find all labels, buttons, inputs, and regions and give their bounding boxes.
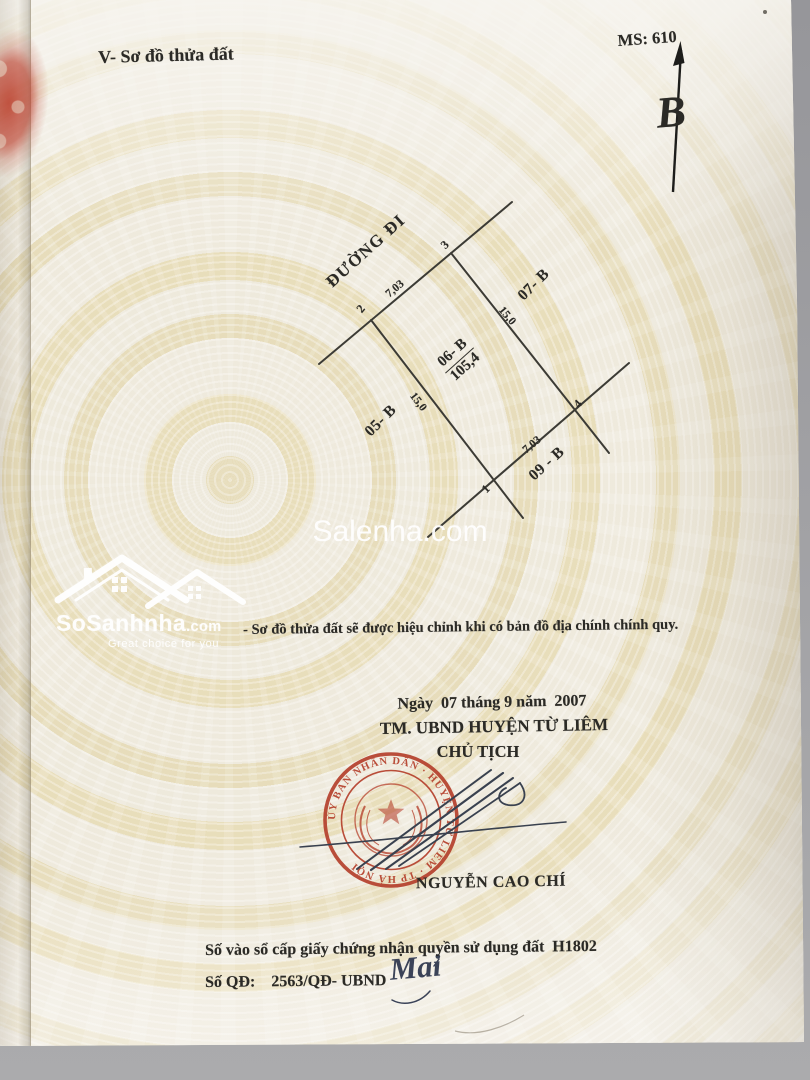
corner-label-3: 3 [438, 238, 453, 253]
authority-line: TM. UBND HUYỆN TỪ LIÊM [380, 715, 608, 739]
logo-tagline: Great choice for you [108, 638, 250, 650]
decision-number-line: Số QĐ: 2563/QĐ- UBND [205, 972, 387, 992]
adjustment-note: - Sơ đồ thửa đất sẽ được hiệu chỉnh khi … [243, 617, 678, 639]
partial-red-stamp [0, 24, 56, 181]
section-title: V- Sơ đồ thửa đất [98, 43, 234, 68]
signature-ink [300, 770, 566, 870]
certificate-page: V- Sơ đồ thửa đất MS: 610 ỦY BAN NHÂN DÂ… [0, 0, 810, 1080]
corner-label-4: 4 [570, 397, 585, 411]
corner-label-1: 1 [479, 482, 494, 497]
logo-suffix: .com [186, 619, 221, 635]
dimension-left: 15,0 [407, 390, 429, 413]
plot-label-06B: 06- B 105,4 [433, 334, 485, 386]
seal-emblem [361, 799, 422, 853]
seal-ring-text: ỦY BAN NHÂN DÂN · HUYỆN TỪ LIÊM · TP HÀ … [326, 756, 456, 885]
dimension-top: 7,03 [383, 278, 406, 300]
dimension-right: 15,0 [496, 304, 518, 327]
houses-icon [50, 550, 246, 608]
map-sheet-code: MS: 610 [617, 27, 677, 51]
north-letter: B [654, 85, 688, 138]
sosanhnha-logo: SoSanhnha.com Great choice for you [50, 550, 250, 652]
official-seal: ỦY BAN NHÂN DÂN · HUYỆN TỪ LIÊM · TP HÀ … [325, 754, 457, 886]
dimension-bottom: 7,03 [520, 434, 543, 456]
neighbor-plot-07B: 07- B [514, 265, 553, 304]
registry-book-line: Số vào sổ cấp giấy chứng nhận quyền sử d… [205, 938, 597, 960]
corner-label-2: 2 [353, 302, 368, 316]
svg-text:ỦY BAN NHÂN DÂN · HUYỆN TỪ LIÊ: ỦY BAN NHÂN DÂN · HUYỆN TỪ LIÊM · TP HÀ … [326, 756, 456, 885]
signer-name: NGUYỄN CAO CHÍ [416, 873, 566, 894]
date-line: Ngày 07 tháng 9 năm 2007 [397, 692, 586, 713]
logo-name: SoSanhnha [56, 610, 186, 636]
photo-of-land-certificate: { "header": { "section_title": "V- Sơ đồ… [0, 0, 810, 1080]
site-watermark: Salenha.com [312, 515, 487, 549]
neighbor-plot-05B: 05- B [361, 401, 400, 440]
title-line: CHỦ TỊCH [437, 742, 520, 762]
